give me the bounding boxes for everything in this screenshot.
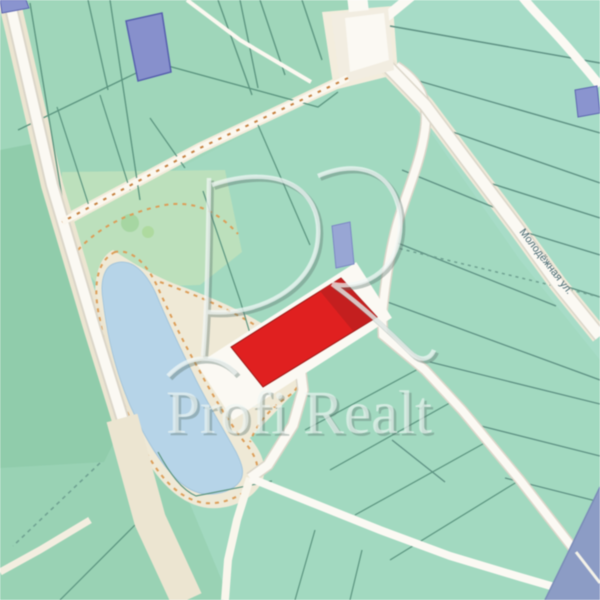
svg-text:Profi Realt: Profi Realt	[166, 380, 432, 447]
